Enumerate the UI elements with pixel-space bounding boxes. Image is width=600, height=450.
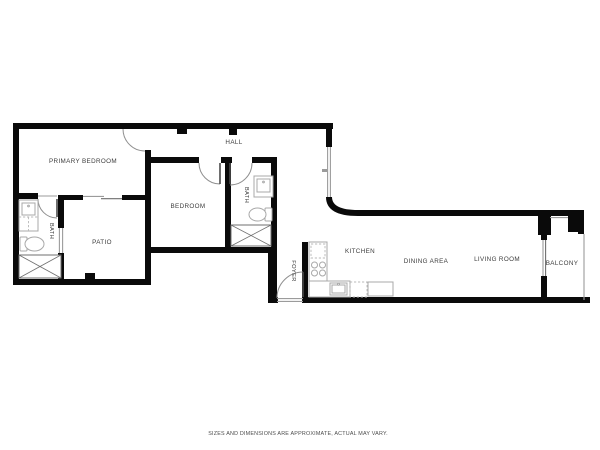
hall-bottom-wall-a — [151, 157, 199, 163]
primary-bedroom-door-arc — [123, 129, 145, 151]
bedroom-bottom-wall — [145, 247, 271, 253]
wall-primary-patio-divider — [145, 150, 151, 285]
patio-pier — [85, 273, 95, 279]
balcony-divider-lower — [541, 276, 547, 303]
bath1-right-wall-upper — [58, 195, 64, 228]
primary-patio-wall-b — [122, 195, 145, 200]
label-bath-primary: BATH — [48, 223, 54, 239]
stove-burner-2 — [320, 262, 326, 268]
hall-pier-1 — [177, 129, 187, 134]
label-primary-bedroom: PRIMARY BEDROOM — [49, 158, 117, 165]
wall-bottom-left-block — [13, 279, 147, 285]
label-patio: PATIO — [92, 239, 112, 246]
label-living-room: LIVING ROOM — [474, 256, 520, 263]
stove-burner-3 — [312, 270, 318, 276]
primary-patio-wall-a — [64, 195, 83, 200]
hall-pier-2 — [229, 129, 237, 135]
label-bedroom: BEDROOM — [171, 203, 206, 210]
hall-window-tick — [322, 169, 327, 172]
stove-burner-1 — [312, 262, 318, 268]
disclaimer-text: SIZES AND DIMENSIONS ARE APPROXIMATE, AC… — [208, 431, 388, 437]
bath1-faucet — [28, 205, 30, 207]
exterior-walls — [13, 123, 590, 303]
entry-door-arc — [277, 272, 303, 298]
label-bath-hall: BATH — [243, 187, 249, 203]
kitchen-sink-inner — [332, 285, 345, 293]
dishwasher-dash — [350, 282, 367, 297]
kitchen-island — [368, 282, 393, 296]
label-hall: HALL — [225, 139, 242, 146]
bedroom-door-arc — [199, 163, 220, 184]
bath2-fixtures — [231, 176, 273, 246]
bath1-toilet-bowl — [25, 237, 44, 251]
wall-top — [13, 123, 333, 129]
kitchen-faucet — [338, 283, 340, 285]
bath1-door-arc — [38, 199, 57, 218]
stove-burner-4 — [320, 270, 326, 276]
curved-wall-top-right-wing — [329, 197, 584, 213]
wall-left — [13, 123, 19, 285]
balcony-divider-upper — [541, 216, 547, 240]
bath2-toilet-bowl — [249, 208, 266, 221]
floor-plan: PRIMARY BEDROOM HALL BEDROOM BATH BATH P… — [0, 0, 600, 450]
label-foyer: FOYER — [290, 260, 296, 281]
hall-right-wall-upper — [326, 123, 332, 147]
label-balcony: BALCONY — [546, 260, 579, 267]
bath2-faucet — [263, 181, 265, 183]
foyer-left-wall — [268, 247, 274, 303]
balcony-stub-right — [568, 216, 584, 232]
bath1-top-wall — [13, 193, 38, 199]
label-kitchen: KITCHEN — [345, 248, 375, 255]
label-dining-area: DINING AREA — [404, 258, 449, 265]
floor-plan-page: PRIMARY BEDROOM HALL BEDROOM BATH BATH P… — [0, 0, 600, 450]
bath2-door-arc — [230, 163, 252, 185]
